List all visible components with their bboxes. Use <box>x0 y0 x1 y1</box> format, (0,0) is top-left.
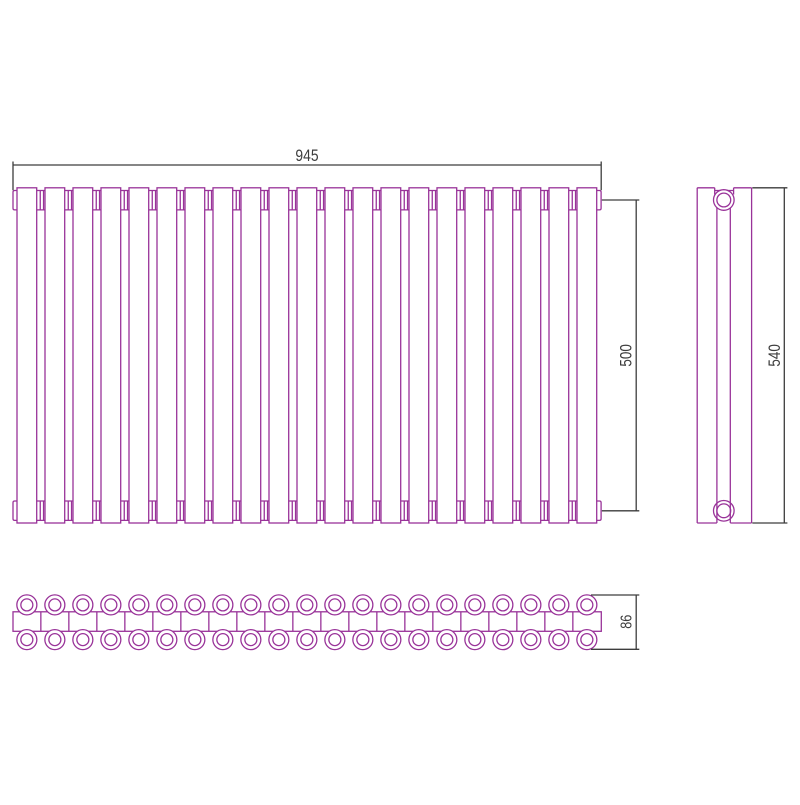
svg-text:945: 945 <box>295 146 318 165</box>
svg-text:540: 540 <box>765 344 784 367</box>
svg-text:500: 500 <box>617 344 636 367</box>
svg-text:86: 86 <box>618 615 635 629</box>
